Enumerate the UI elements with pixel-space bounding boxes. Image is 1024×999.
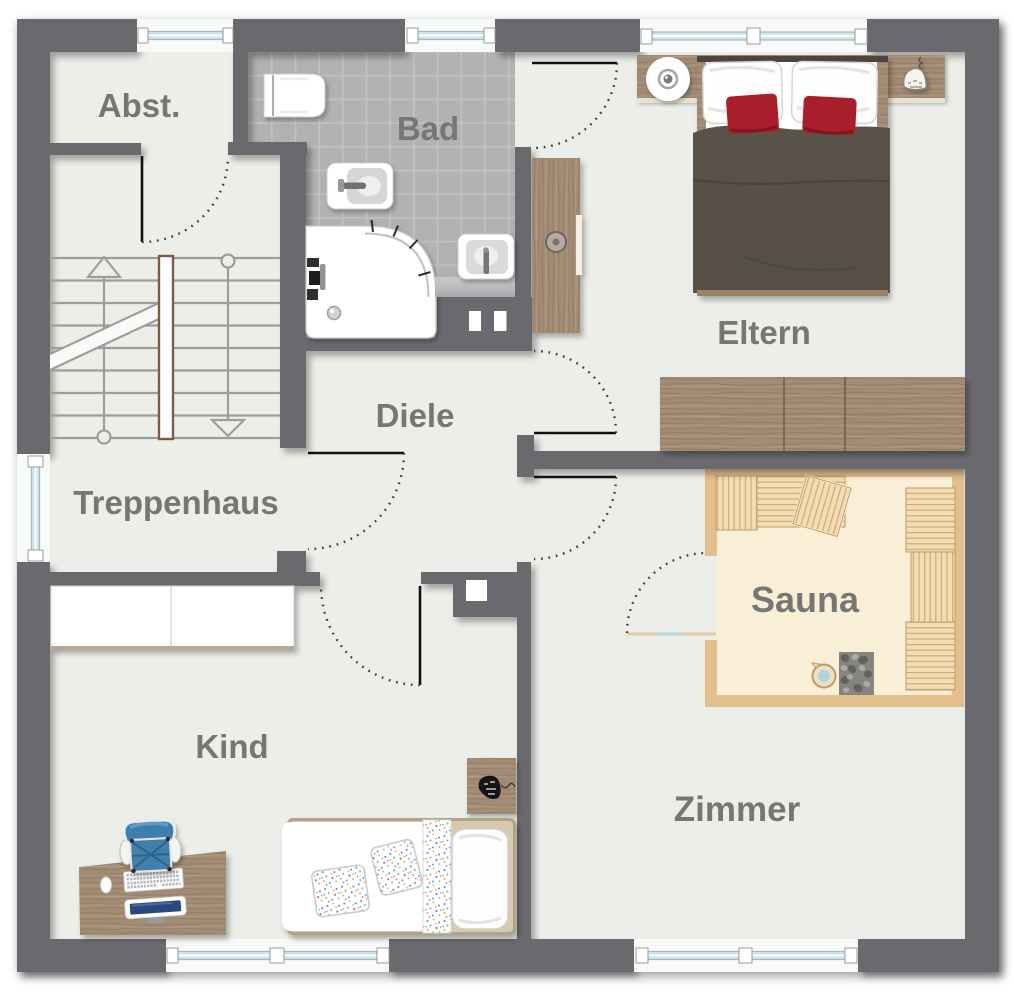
svg-text:Sauna: Sauna	[751, 579, 860, 620]
svg-text:Abst.: Abst.	[98, 87, 181, 124]
svg-text:Bad: Bad	[397, 110, 459, 147]
svg-text:Treppenhaus: Treppenhaus	[73, 484, 278, 521]
svg-text:Zimmer: Zimmer	[674, 790, 801, 829]
svg-text:Kind: Kind	[195, 728, 268, 765]
svg-text:Eltern: Eltern	[717, 314, 811, 351]
svg-text:Diele: Diele	[376, 397, 455, 434]
